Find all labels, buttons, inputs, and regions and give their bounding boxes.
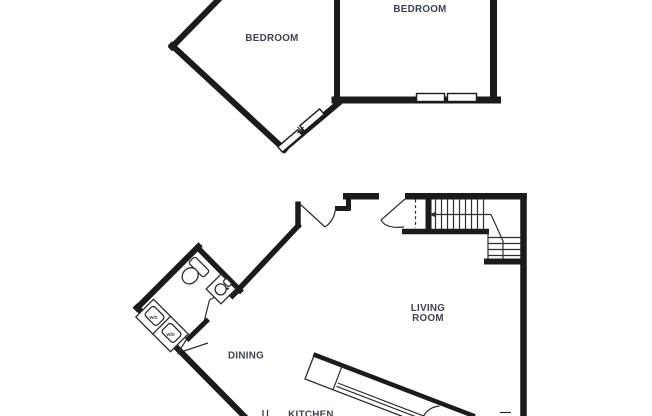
floor-plan: BEDROOM BEDROOM [0,0,652,416]
floor-plan-page: BEDROOM BEDROOM [0,0,652,416]
washer-dryer-label: W/D [149,315,157,320]
lower-floor-plan: W/D W/D LIVING ROOM DINING KITCHEN [136,193,527,416]
staircase [402,196,527,262]
interior-door [300,204,336,227]
stair-treads-lower [488,233,521,259]
entry-door [381,199,416,228]
bedroom-left-walls [172,0,338,150]
room-label-bedroom-left: BEDROOM [245,33,298,44]
bedroom-right-walls [332,0,502,102]
room-label-bedroom-right: BEDROOM [393,4,446,15]
stair-handrail [436,215,503,260]
bedroom-left-window [278,130,302,152]
bedroom-right-window [448,94,477,102]
room-label-kitchen: KITCHEN [288,410,334,416]
room-label-dining: DINING [228,351,264,362]
upper-floor-plan: BEDROOM BEDROOM [172,0,501,152]
washer-dryer-label: W/D [166,332,174,337]
room-label-living-room-line2: ROOM [412,313,444,324]
bedroom-right-window [417,94,445,102]
kitchen-counter [304,354,475,416]
